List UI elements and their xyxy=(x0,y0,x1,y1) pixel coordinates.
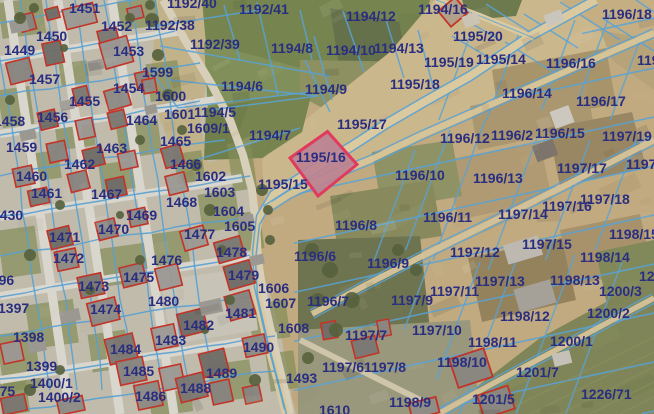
svg-text:1605: 1605 xyxy=(224,218,255,234)
svg-text:12: 12 xyxy=(639,268,654,284)
svg-text:1493: 1493 xyxy=(286,370,317,386)
svg-text:1449: 1449 xyxy=(4,42,35,58)
svg-text:1474: 1474 xyxy=(90,301,121,317)
svg-text:1462: 1462 xyxy=(64,156,95,172)
svg-text:1475: 1475 xyxy=(123,269,154,285)
svg-text:1451: 1451 xyxy=(69,0,100,16)
svg-text:1473: 1473 xyxy=(78,278,109,294)
svg-text:1194/5: 1194/5 xyxy=(194,104,236,120)
svg-text:1198/9: 1198/9 xyxy=(389,394,431,410)
svg-text:1192/39: 1192/39 xyxy=(190,36,240,52)
svg-text:1488: 1488 xyxy=(180,380,211,396)
svg-text:1472: 1472 xyxy=(53,250,84,266)
svg-text:1461: 1461 xyxy=(31,185,62,201)
svg-text:1397: 1397 xyxy=(0,300,29,316)
svg-text:1198/15: 1198/15 xyxy=(609,226,654,242)
svg-text:1479: 1479 xyxy=(228,267,259,283)
svg-text:1197/8: 1197/8 xyxy=(364,359,406,375)
svg-text:1608: 1608 xyxy=(278,320,309,336)
svg-text:1195/17: 1195/17 xyxy=(337,116,387,132)
svg-text:1471: 1471 xyxy=(49,229,80,245)
svg-text:1476: 1476 xyxy=(151,252,182,268)
svg-text:1467: 1467 xyxy=(91,186,122,202)
svg-text:1194/7: 1194/7 xyxy=(249,127,291,143)
svg-text:1457: 1457 xyxy=(29,71,60,87)
svg-text:1452: 1452 xyxy=(101,18,132,34)
svg-text:1197/10: 1197/10 xyxy=(412,322,462,338)
svg-text:1470: 1470 xyxy=(98,221,129,237)
svg-text:1196/14: 1196/14 xyxy=(502,85,552,101)
svg-text:1375: 1375 xyxy=(0,383,15,399)
svg-text:1609/1: 1609/1 xyxy=(187,120,230,136)
svg-text:1489: 1489 xyxy=(206,365,237,381)
svg-text:1486: 1486 xyxy=(135,388,166,404)
svg-text:1458: 1458 xyxy=(0,113,25,129)
svg-text:1201/5: 1201/5 xyxy=(472,391,515,407)
svg-text:1198/13: 1198/13 xyxy=(550,272,600,288)
svg-text:1197/11: 1197/11 xyxy=(430,283,479,299)
svg-text:1196/10: 1196/10 xyxy=(395,167,445,183)
svg-text:1226/71: 1226/71 xyxy=(581,386,632,402)
svg-text:1398: 1398 xyxy=(13,329,44,345)
svg-text:1197/12: 1197/12 xyxy=(450,244,500,260)
svg-text:1200/1: 1200/1 xyxy=(550,333,593,349)
svg-text:1197/7: 1197/7 xyxy=(345,327,387,343)
svg-text:1460: 1460 xyxy=(16,168,47,184)
svg-text:1400/2: 1400/2 xyxy=(38,389,81,405)
svg-text:1195/14: 1195/14 xyxy=(476,51,526,67)
svg-text:1603: 1603 xyxy=(204,184,235,200)
svg-text:1430: 1430 xyxy=(0,207,23,223)
svg-text:1453: 1453 xyxy=(113,43,144,59)
svg-text:1197/15: 1197/15 xyxy=(522,236,572,252)
svg-text:1194/8: 1194/8 xyxy=(271,40,313,56)
svg-text:1456: 1456 xyxy=(37,109,68,125)
svg-text:1200/3: 1200/3 xyxy=(599,283,642,299)
svg-text:1192/38: 1192/38 xyxy=(145,17,195,33)
svg-text:1483: 1483 xyxy=(155,332,186,348)
svg-text:1464: 1464 xyxy=(126,112,157,128)
svg-text:1196/7: 1196/7 xyxy=(307,293,349,309)
svg-text:1600: 1600 xyxy=(155,88,186,104)
svg-text:1399: 1399 xyxy=(26,358,57,374)
svg-text:1481: 1481 xyxy=(225,305,256,321)
svg-text:1195/20: 1195/20 xyxy=(453,28,503,44)
svg-text:1490: 1490 xyxy=(243,339,274,355)
svg-text:1196/11: 1196/11 xyxy=(423,209,472,225)
svg-text:1196/15: 1196/15 xyxy=(535,125,585,141)
svg-text:1194/10: 1194/10 xyxy=(326,42,376,58)
svg-text:1197/9: 1197/9 xyxy=(391,292,433,308)
svg-text:1194/13: 1194/13 xyxy=(374,40,424,56)
svg-text:1484: 1484 xyxy=(110,341,141,357)
svg-text:1197/14: 1197/14 xyxy=(498,206,548,222)
svg-text:1197/2: 1197/2 xyxy=(626,156,654,172)
svg-text:1196/8: 1196/8 xyxy=(335,217,377,233)
svg-text:1606: 1606 xyxy=(258,280,289,296)
svg-text:1197/6: 1197/6 xyxy=(322,359,364,375)
svg-text:1599: 1599 xyxy=(142,64,173,80)
svg-text:1459: 1459 xyxy=(6,139,37,155)
svg-text:1197/17: 1197/17 xyxy=(557,160,607,176)
svg-text:1610: 1610 xyxy=(319,402,350,414)
svg-text:1485: 1485 xyxy=(123,363,154,379)
svg-text:1196/6: 1196/6 xyxy=(294,248,336,264)
svg-text:1196/13: 1196/13 xyxy=(473,170,523,186)
svg-text:1194/6: 1194/6 xyxy=(221,78,263,94)
svg-text:1477: 1477 xyxy=(184,226,215,242)
svg-text:1197/13: 1197/13 xyxy=(475,273,525,289)
svg-text:1201/7: 1201/7 xyxy=(516,364,559,380)
svg-text:1194/9: 1194/9 xyxy=(305,81,347,97)
svg-text:1455: 1455 xyxy=(69,93,100,109)
svg-text:1602: 1602 xyxy=(195,168,226,184)
svg-text:1196/2: 1196/2 xyxy=(491,127,533,143)
svg-text:1396: 1396 xyxy=(0,272,14,288)
svg-text:1465: 1465 xyxy=(160,133,191,149)
svg-text:1194/12: 1194/12 xyxy=(346,8,396,24)
svg-text:1198/10: 1198/10 xyxy=(437,354,487,370)
svg-text:1196/9: 1196/9 xyxy=(367,255,409,271)
svg-text:1196/17: 1196/17 xyxy=(576,93,626,109)
svg-text:1195/16: 1195/16 xyxy=(296,149,346,165)
svg-text:1198/11: 1198/11 xyxy=(468,334,517,350)
svg-text:1195/18: 1195/18 xyxy=(390,76,440,92)
svg-text:1196/19: 1196/19 xyxy=(637,52,654,68)
svg-text:1196/16: 1196/16 xyxy=(546,55,596,71)
svg-text:1480: 1480 xyxy=(148,293,179,309)
svg-text:1195/19: 1195/19 xyxy=(424,54,474,70)
svg-text:1454: 1454 xyxy=(113,80,144,96)
svg-text:1607: 1607 xyxy=(265,295,296,311)
svg-text:1463: 1463 xyxy=(96,140,127,156)
svg-text:1192/41: 1192/41 xyxy=(239,1,289,17)
svg-text:1468: 1468 xyxy=(166,194,197,210)
svg-text:1200/2: 1200/2 xyxy=(587,305,630,321)
svg-text:1482: 1482 xyxy=(183,317,214,333)
svg-text:1478: 1478 xyxy=(216,244,247,260)
svg-text:1198/14: 1198/14 xyxy=(580,249,630,265)
svg-text:1192/40: 1192/40 xyxy=(167,0,217,11)
svg-text:1196/12: 1196/12 xyxy=(440,130,490,146)
svg-text:1195/15: 1195/15 xyxy=(258,176,308,192)
svg-text:1469: 1469 xyxy=(126,207,157,223)
svg-text:1197/16: 1197/16 xyxy=(542,198,592,214)
svg-text:1194/16: 1194/16 xyxy=(418,1,468,17)
svg-text:1604: 1604 xyxy=(213,203,244,219)
svg-text:1450: 1450 xyxy=(36,28,67,44)
svg-text:1196/18: 1196/18 xyxy=(602,6,652,22)
svg-text:1198/12: 1198/12 xyxy=(500,308,550,324)
svg-text:1197/19: 1197/19 xyxy=(602,128,652,144)
